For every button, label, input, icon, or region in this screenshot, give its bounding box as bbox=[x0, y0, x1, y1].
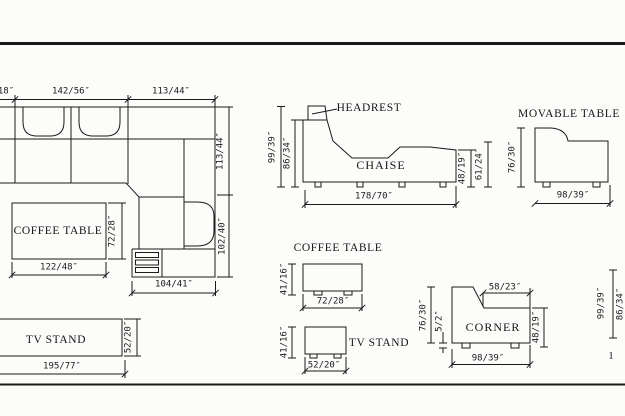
dim-corner-top: 58/23″ bbox=[489, 284, 522, 293]
dim-movable-height: 76/30″ bbox=[509, 141, 518, 174]
dim-coffee-elev-width: 72/28″ bbox=[317, 298, 350, 307]
dim-plan-right-upper: 113/44″ bbox=[217, 132, 226, 170]
dim-chaise-back-height: 61/24″ bbox=[476, 148, 485, 181]
dim-corner-height: 76/30″ bbox=[420, 299, 429, 332]
sectional-sofa-plan bbox=[0, 95, 233, 296]
dim-corner-far-right-inner: 86/34″ bbox=[617, 288, 625, 321]
furniture-dimension-drawing: 18″ 142/56″ 113/44″ 113/44″ 102/40″ 104/… bbox=[0, 0, 625, 416]
tv-stand-elevation-label: TV STAND bbox=[349, 337, 409, 349]
corner-elevation bbox=[427, 270, 617, 368]
dim-movable-width: 98/39″ bbox=[557, 192, 590, 201]
coffee-table-elevation-label: COFFEE TABLE bbox=[294, 242, 383, 254]
dim-coffee-elev-height: 41/16″ bbox=[281, 263, 290, 296]
dim-chaise-length: 178/70″ bbox=[355, 193, 393, 202]
dim-chaise-height-total: 99/39″ bbox=[269, 131, 278, 164]
dim-tv-plan-width: 195/77″ bbox=[43, 363, 81, 372]
coffee-table-plan-label: COFFEE TABLE bbox=[14, 225, 103, 237]
drawing-linework bbox=[0, 0, 625, 416]
dim-plan-top-left: 142/56″ bbox=[52, 88, 90, 97]
dim-plan-chaise-width: 104/41″ bbox=[155, 281, 193, 290]
dim-corner-feet: 5/2″ bbox=[436, 310, 445, 332]
movable-table-label: MOVABLE TABLE bbox=[518, 108, 620, 120]
dim-coffee-plan-depth: 72/28″ bbox=[109, 215, 118, 248]
page-number: 1 bbox=[608, 350, 614, 362]
dim-corner-arm-height: 48/19″ bbox=[533, 311, 542, 344]
dim-plan-right-lower: 102/40″ bbox=[219, 217, 228, 255]
corner-label: CORNER bbox=[466, 321, 521, 333]
dim-corner-far-right-outer: 99/39″ bbox=[598, 287, 607, 320]
dim-plan-left-partial: 18″ bbox=[0, 88, 14, 97]
dim-coffee-plan-width: 122/48″ bbox=[40, 264, 78, 273]
chaise-label: CHAISE bbox=[356, 159, 405, 171]
dim-plan-top-right: 113/44″ bbox=[152, 88, 190, 97]
dim-chaise-height-body: 86/34″ bbox=[284, 137, 293, 170]
tv-stand-plan-label: TV STAND bbox=[26, 334, 86, 346]
dim-tv-elev-width: 52/20″ bbox=[308, 362, 341, 371]
headrest-callout: HEADREST bbox=[337, 102, 402, 114]
dim-chaise-arm-height: 48/19″ bbox=[459, 152, 468, 185]
dim-tv-plan-depth: 52/20″ bbox=[125, 321, 134, 354]
dim-corner-width: 98/39″ bbox=[472, 355, 505, 364]
dim-tv-elev-height: 41/16″ bbox=[281, 326, 290, 359]
